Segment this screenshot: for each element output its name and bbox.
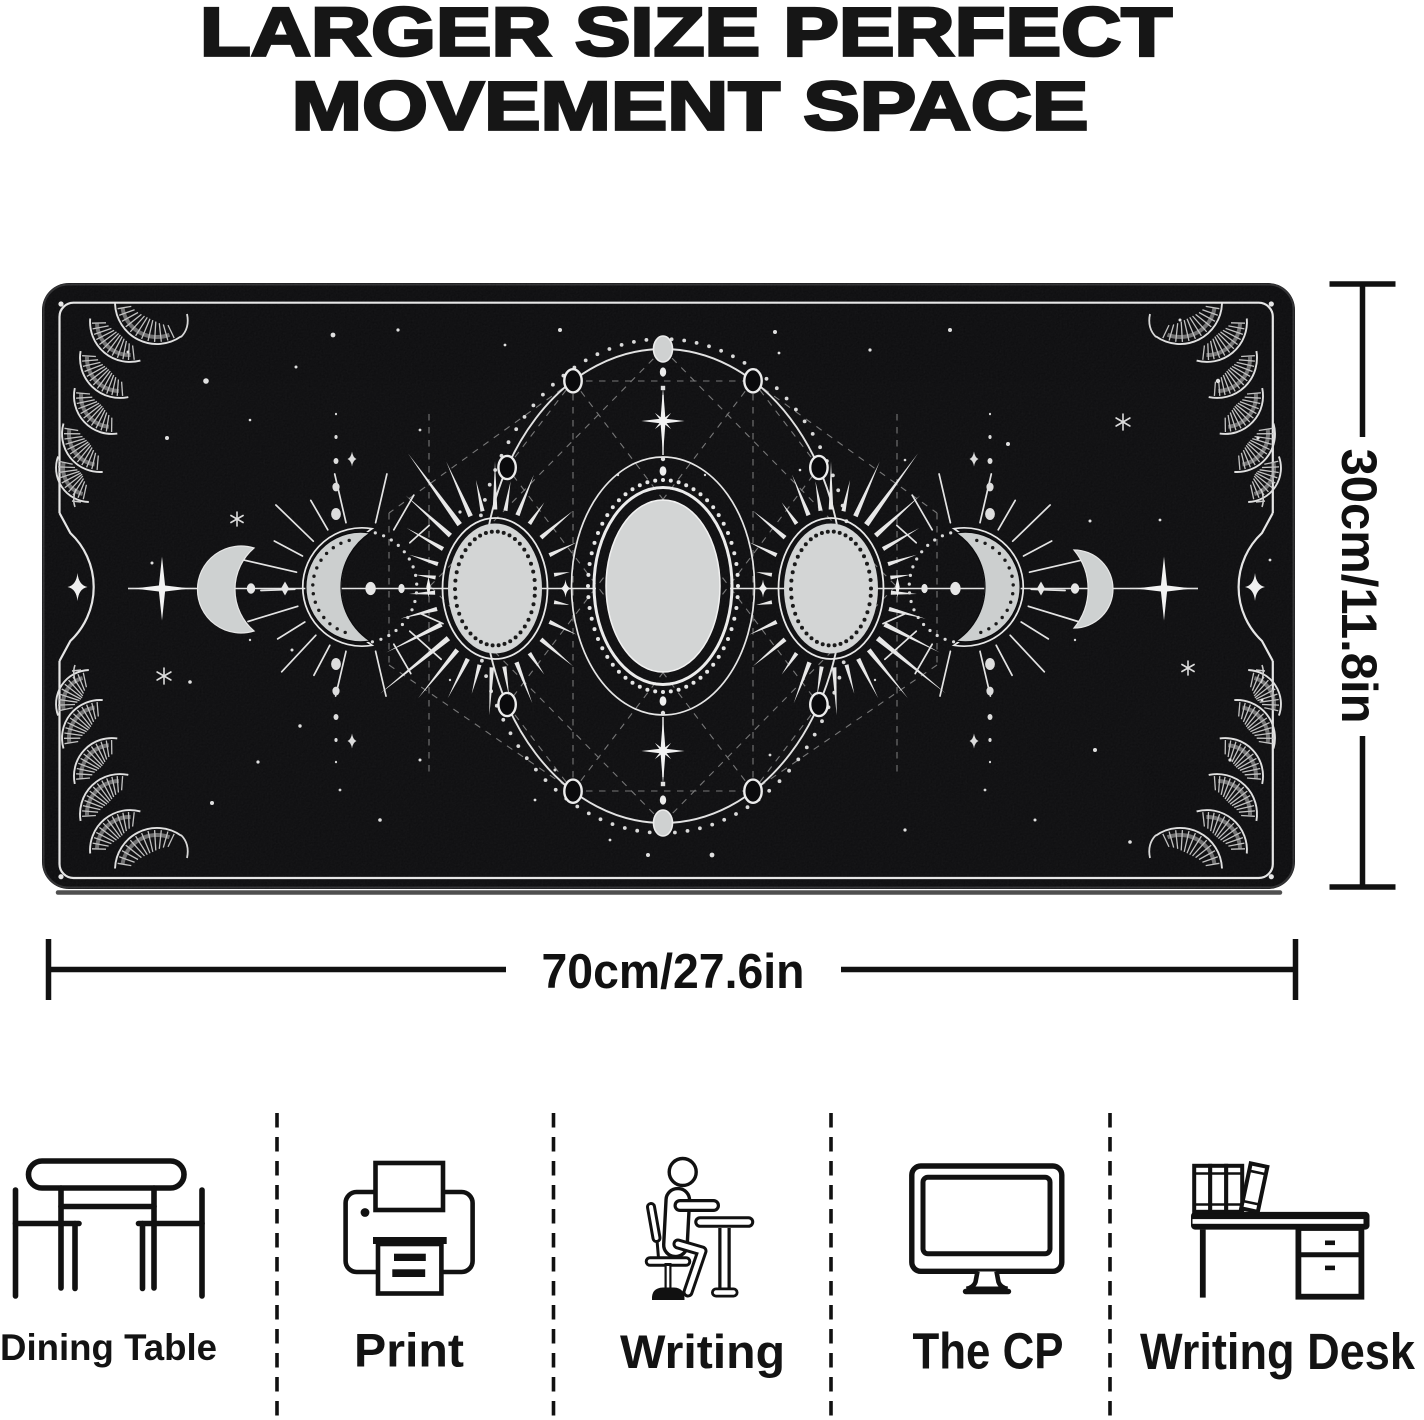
svg-text:Print: Print <box>354 1324 464 1377</box>
svg-text:LARGER SIZE PERFECT: LARGER SIZE PERFECT <box>200 0 1172 71</box>
svg-text:MOVEMENT SPACE: MOVEMENT SPACE <box>292 68 1089 145</box>
svg-text:Writing: Writing <box>620 1326 785 1379</box>
svg-text:Writing Desk: Writing Desk <box>1140 1323 1416 1380</box>
svg-text:Dining Table: Dining Table <box>0 1327 217 1368</box>
svg-text:70cm/27.6in: 70cm/27.6in <box>542 945 805 999</box>
svg-text:The CP: The CP <box>913 1323 1064 1380</box>
svg-text:30cm/11.8in: 30cm/11.8in <box>1331 449 1387 724</box>
